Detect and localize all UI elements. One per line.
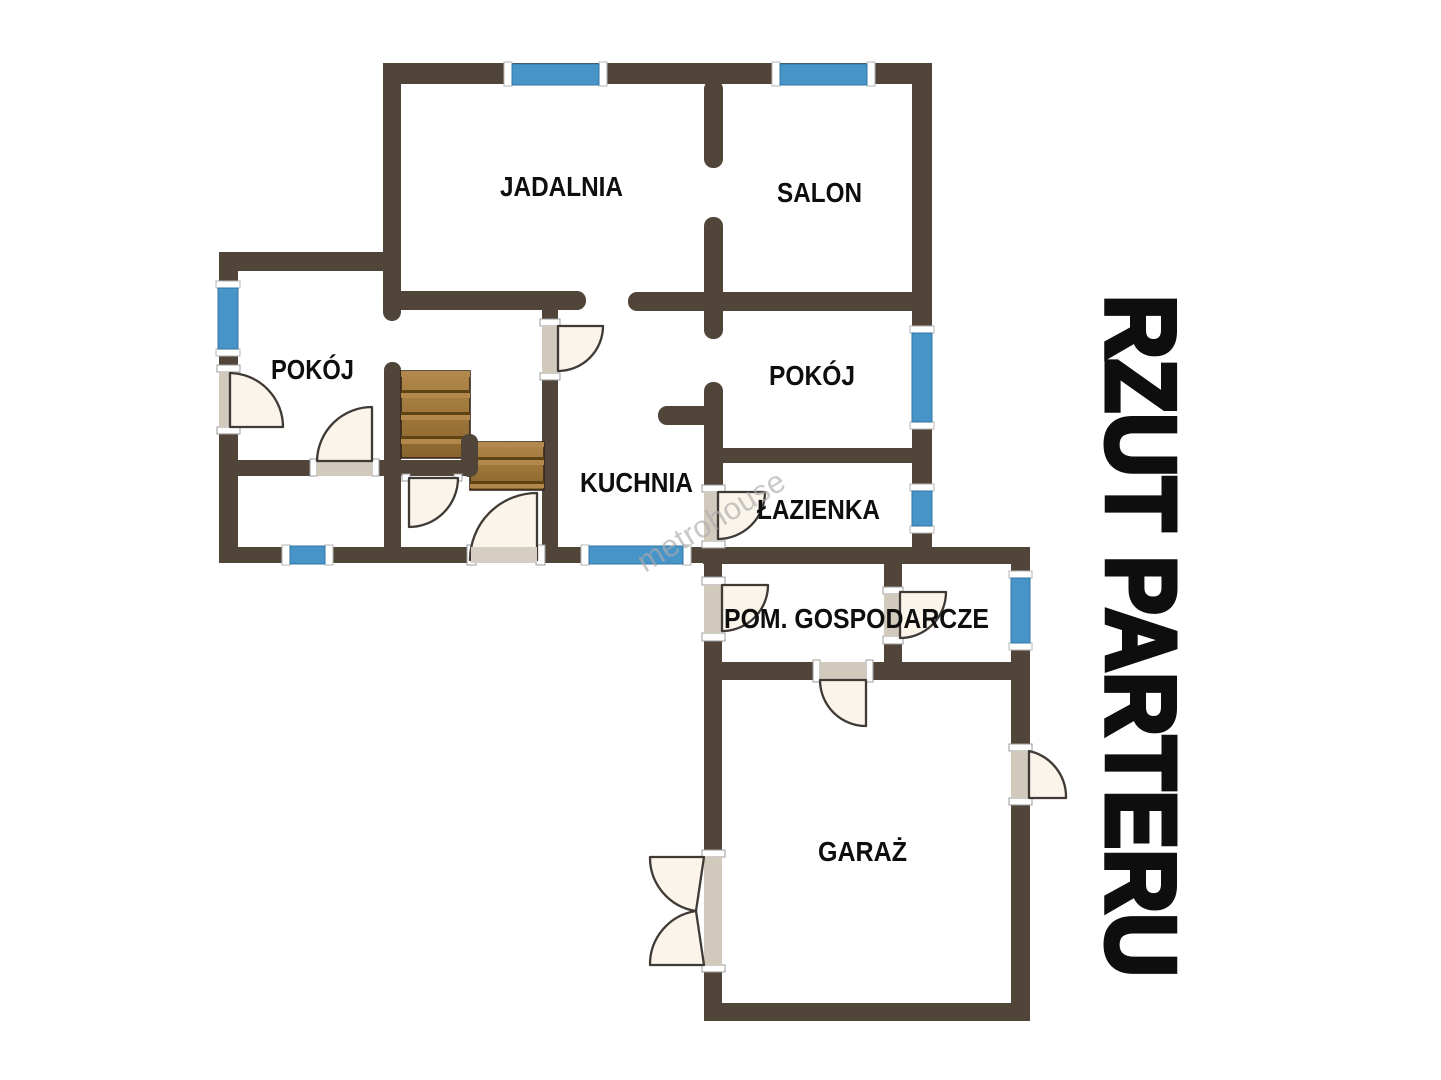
svg-text:POKÓJ: POKÓJ (769, 360, 855, 391)
svg-text:POM. GOSPODARCZE: POM. GOSPODARCZE (724, 603, 989, 634)
svg-text:GARAŻ: GARAŻ (818, 836, 907, 867)
svg-text:KUCHNIA: KUCHNIA (580, 467, 693, 498)
svg-text:RZUT PARTERU: RZUT PARTERU (1086, 295, 1196, 977)
svg-text:JADALNIA: JADALNIA (500, 171, 623, 202)
svg-text:SALON: SALON (777, 177, 862, 208)
svg-text:ŁAZIENKA: ŁAZIENKA (757, 494, 880, 525)
svg-text:POKÓJ: POKÓJ (271, 354, 354, 385)
